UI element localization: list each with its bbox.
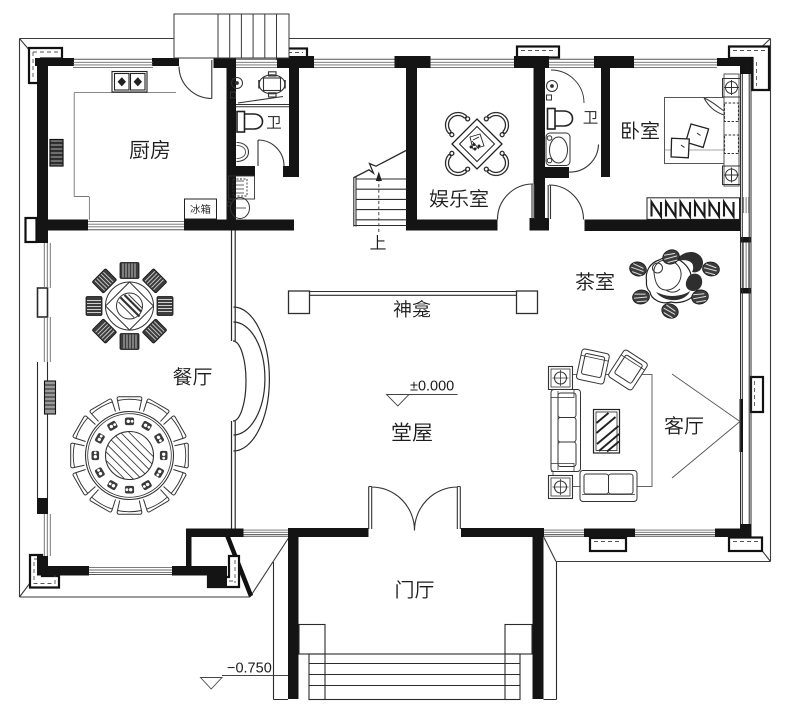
- svg-text:−0.750: −0.750: [227, 661, 272, 677]
- svg-text:±0.000: ±0.000: [410, 379, 454, 395]
